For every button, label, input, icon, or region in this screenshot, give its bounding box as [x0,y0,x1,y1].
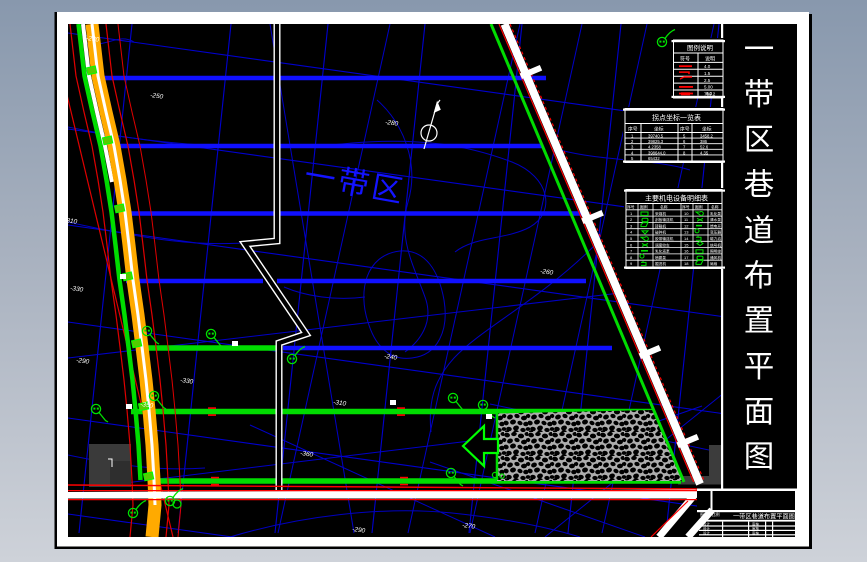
svg-text:2.5: 2.5 [704,78,711,83]
svg-text:喷雾泵: 喷雾泵 [655,255,666,260]
svg-text:16: 16 [684,249,689,254]
svg-text:15: 15 [684,242,689,247]
svg-text:符号: 符号 [680,56,690,63]
svg-text:14: 14 [684,236,689,241]
svg-text:13: 13 [684,230,689,235]
svg-text:设计: 设计 [703,526,711,531]
svg-text:布: 布 [744,259,775,293]
svg-text:拐点坐标一览表: 拐点坐标一览表 [652,113,701,122]
svg-text:4.0: 4.0 [704,64,711,69]
svg-text:序号: 序号 [627,204,635,209]
svg-text:调度绞车: 调度绞车 [655,242,670,247]
svg-text:平: 平 [744,350,775,384]
svg-text:区: 区 [744,123,775,157]
svg-text:带: 带 [744,78,775,112]
svg-text:序号: 序号 [682,204,690,209]
svg-text:名称: 名称 [660,204,668,209]
svg-text:道: 道 [744,214,775,248]
svg-text:一: 一 [744,33,775,67]
svg-text:清水泵: 清水泵 [710,217,721,222]
svg-text:主要机电设备明细表: 主要机电设备明细表 [645,194,708,203]
svg-text:刮板输送机: 刮板输送机 [655,217,674,222]
svg-text:名称: 名称 [711,204,719,209]
svg-text:坐标: 坐标 [654,126,664,133]
svg-text:乳化泵: 乳化泵 [710,211,721,216]
svg-text:照明综: 照明综 [710,249,721,254]
svg-text:图号: 图号 [700,512,708,517]
svg-text:面: 面 [744,395,775,429]
svg-text:审核: 审核 [752,526,760,531]
svg-text:一带区巷道布置平面图: 一带区巷道布置平面图 [733,513,795,521]
svg-text:坐标: 坐标 [702,126,712,133]
svg-text:说明: 说明 [705,56,715,63]
svg-text:馈电开: 馈电开 [710,223,721,228]
svg-text:审核: 审核 [752,522,760,527]
svg-text:12: 12 [684,223,689,228]
svg-text:局扇: 局扇 [710,261,718,266]
svg-text:比例: 比例 [712,512,720,517]
svg-text:置: 置 [744,304,775,338]
svg-text:10: 10 [684,211,689,216]
svg-text:掘进机: 掘进机 [655,261,666,266]
svg-text:通风机: 通风机 [710,255,721,260]
svg-text:乳化液泵: 乳化液泵 [655,249,670,254]
svg-text:设计: 设计 [703,522,711,527]
svg-text:图例: 图例 [640,204,648,209]
svg-text:磁力启: 磁力启 [710,236,721,241]
svg-text:65432: 65432 [648,156,660,161]
svg-text:1.5: 1.5 [704,71,711,76]
svg-text:序号: 序号 [680,126,690,133]
svg-text:图例: 图例 [695,204,703,209]
svg-text:18: 18 [684,261,689,266]
svg-text:序号: 序号 [628,126,638,133]
svg-text:5.00: 5.00 [704,85,713,90]
svg-text:6.2: 6.2 [706,91,713,96]
svg-text:转载机: 转载机 [655,223,666,228]
svg-text:图例说明: 图例说明 [687,43,714,52]
svg-text:采煤机: 采煤机 [655,211,666,216]
svg-text:巷: 巷 [744,168,775,202]
svg-text:变压器: 变压器 [710,230,721,235]
svg-text:破碎机: 破碎机 [655,230,666,235]
svg-text:17: 17 [684,255,689,260]
svg-text:信号机: 信号机 [710,242,721,247]
svg-text:设计: 设计 [703,530,711,535]
svg-text:审核: 审核 [752,530,760,535]
svg-text:胶带输送机: 胶带输送机 [655,236,674,241]
svg-text:图: 图 [744,440,775,474]
